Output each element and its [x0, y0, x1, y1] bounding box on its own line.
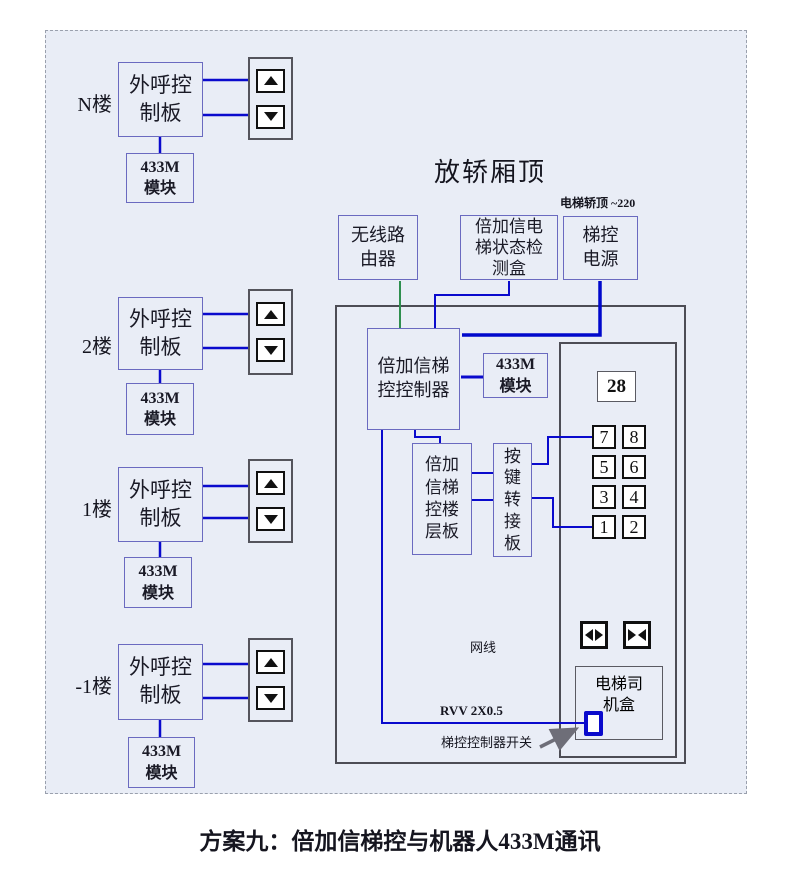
key-adapter-box: 按键转接板	[493, 443, 532, 557]
up-button	[256, 650, 285, 674]
up-arrow-icon	[264, 658, 278, 667]
wireless-router-label: 无线路由器	[349, 224, 407, 272]
toggle-switch-icon	[584, 711, 603, 736]
controller-box: 倍加信梯控控制器	[367, 328, 460, 430]
diagram-canvas: N楼 外呼控制板 433M 模块 2楼 外呼控制板 433M 模块 1楼 外呼控…	[0, 0, 800, 883]
floor-display: 28	[597, 371, 636, 402]
driver-box-label: 电梯司机盒	[592, 674, 646, 716]
door-open-icon	[585, 629, 593, 641]
floor-label-n: N楼	[30, 88, 112, 117]
elevator-status-detector-box: 倍加信电梯状态检测盒	[460, 215, 558, 280]
power-note: 电梯轿顶 ~220	[560, 194, 635, 211]
call-board-n: 外呼控制板	[118, 62, 203, 137]
floor-button-3: 3	[592, 485, 616, 509]
hall-button-panel-2	[248, 289, 293, 375]
down-button	[256, 686, 285, 710]
down-button	[256, 507, 285, 531]
door-close-button	[623, 621, 651, 649]
up-arrow-icon	[264, 310, 278, 319]
network-cable-label: 网线	[470, 637, 496, 656]
elevator-control-power-box: 梯控电源	[563, 216, 638, 280]
floor-label-neg1: -1楼	[30, 670, 112, 699]
down-arrow-icon	[264, 112, 278, 121]
module-433m-2: 433M 模块	[126, 383, 194, 435]
floor-button-7: 7	[592, 425, 616, 449]
diagram-caption: 方案九：倍加信梯控与机器人433M通讯	[0, 822, 800, 856]
call-board-n-label: 外呼控制板	[126, 72, 196, 127]
up-button	[256, 302, 285, 326]
key-adapter-label: 按键转接板	[504, 446, 522, 555]
cabinet-433m-module-label: 433M 模块	[492, 354, 540, 396]
controller-label: 倍加信梯控控制器	[377, 355, 451, 403]
module-433m-2-label: 433M 模块	[136, 388, 184, 430]
floor-button-2: 2	[622, 515, 646, 539]
call-board-1-label: 外呼控制板	[126, 477, 196, 532]
cabinet-433m-module-box: 433M 模块	[483, 353, 548, 398]
hall-button-panel-n	[248, 57, 293, 140]
down-button	[256, 105, 285, 129]
down-arrow-icon	[264, 515, 278, 524]
call-board-neg1-label: 外呼控制板	[126, 654, 196, 709]
floor-button-6: 6	[622, 455, 646, 479]
elevator-status-detector-label: 倍加信电梯状态检测盒	[473, 216, 545, 280]
floor-button-4: 4	[622, 485, 646, 509]
floor-board-box: 倍加信梯控楼层板	[412, 443, 472, 555]
call-board-2: 外呼控制板	[118, 297, 203, 370]
up-button	[256, 471, 285, 495]
up-arrow-icon	[264, 76, 278, 85]
module-433m-neg1-label: 433M 模块	[138, 741, 186, 783]
floor-label-1: 1楼	[30, 493, 112, 522]
floor-button-8: 8	[622, 425, 646, 449]
up-button	[256, 69, 285, 93]
down-button	[256, 338, 285, 362]
door-open-button	[580, 621, 608, 649]
floor-button-5: 5	[592, 455, 616, 479]
module-433m-1: 433M 模块	[124, 557, 192, 608]
door-close-icon	[628, 629, 636, 641]
call-board-neg1: 外呼控制板	[118, 644, 203, 720]
up-arrow-icon	[264, 479, 278, 488]
down-arrow-icon	[264, 694, 278, 703]
module-433m-n-label: 433M 模块	[136, 157, 184, 199]
switch-label: 梯控控制器开关	[441, 732, 532, 751]
hall-button-panel-1	[248, 459, 293, 543]
wireless-router-box: 无线路由器	[338, 215, 418, 280]
hall-button-panel-neg1	[248, 638, 293, 722]
call-board-2-label: 外呼控制板	[126, 306, 196, 361]
rvv-cable-label: RVV 2X0.5	[440, 703, 503, 719]
car-top-title: 放轿厢顶	[400, 152, 580, 189]
elevator-control-power-label: 梯控电源	[581, 224, 621, 272]
call-board-1: 外呼控制板	[118, 467, 203, 542]
module-433m-n: 433M 模块	[126, 153, 194, 203]
floor-board-label: 倍加信梯控楼层板	[424, 454, 460, 544]
down-arrow-icon	[264, 346, 278, 355]
floor-button-1: 1	[592, 515, 616, 539]
module-433m-1-label: 433M 模块	[134, 561, 182, 603]
module-433m-neg1: 433M 模块	[128, 737, 195, 788]
floor-label-2: 2楼	[30, 330, 112, 359]
